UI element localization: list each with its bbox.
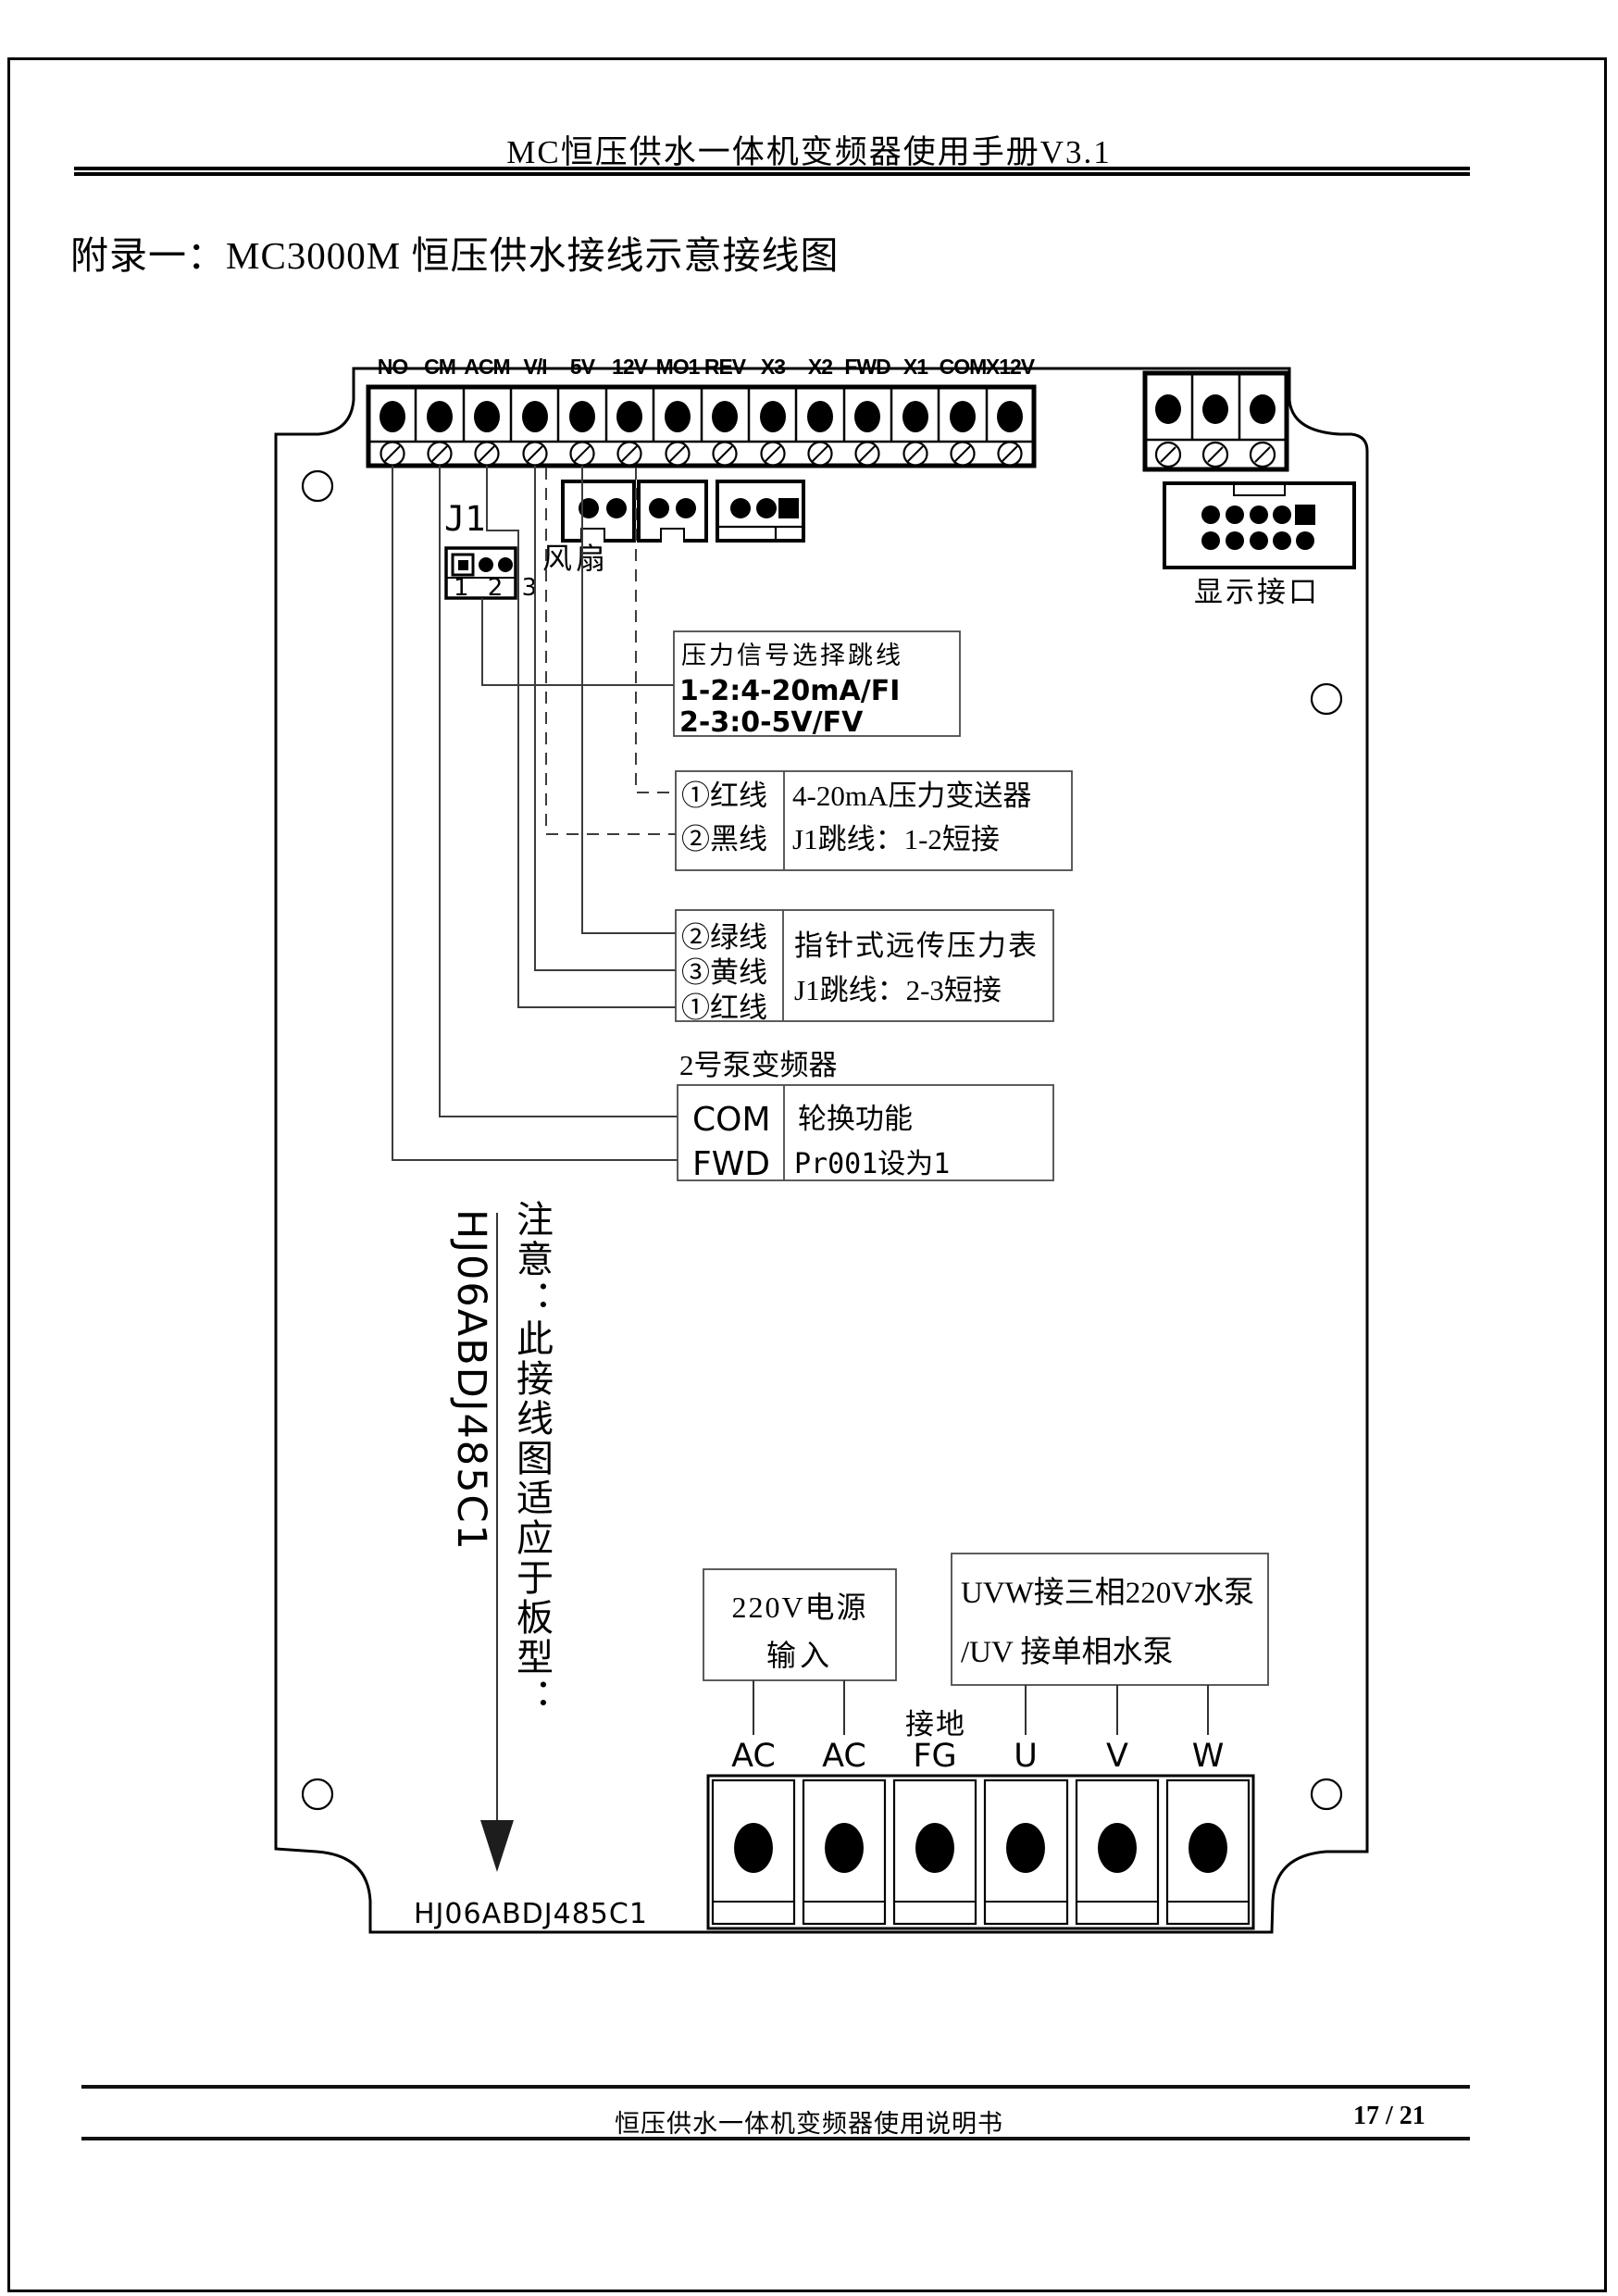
power-box-line2: 输入 bbox=[766, 1639, 833, 1672]
pump-box-line2: /UV 接单相水泵 bbox=[961, 1635, 1174, 1669]
aux-connector bbox=[717, 481, 803, 541]
terminal-label: REV bbox=[704, 355, 747, 379]
j1-pin-numbers: 1 2 3 bbox=[454, 574, 542, 602]
power-terminal-label: W bbox=[1192, 1738, 1225, 1775]
manual-page: MC恒压供水一体机变频器使用手册V3.1 附录一：MC3000M 恒压供水接线示… bbox=[0, 0, 1618, 2296]
terminal-label: X2 bbox=[808, 355, 832, 379]
terminal-label: NO bbox=[378, 355, 408, 379]
power-terminal-label: U bbox=[1014, 1738, 1038, 1775]
transducer-desc2: J1跳线：1-2短接 bbox=[792, 823, 1000, 855]
power-terminal-label: AC bbox=[822, 1738, 866, 1775]
gauge-wire3: ①红线 bbox=[681, 992, 767, 1024]
board-model-vertical: HJ06ABDJ485C1 bbox=[448, 1209, 494, 1524]
pressure-jumper-line2: 1-2:4-20mA/FI bbox=[679, 675, 900, 707]
power-terminal-label: FG bbox=[913, 1738, 956, 1775]
fan-connector-1 bbox=[563, 481, 634, 543]
terminal-label: 12V bbox=[612, 355, 649, 379]
page-number: 17 / 21 bbox=[1353, 2102, 1425, 2131]
ground-label: 接地 bbox=[905, 1708, 966, 1741]
gauge-desc2: J1跳线：2-3短接 bbox=[794, 974, 1002, 1006]
transducer-wire1: ①红线 bbox=[681, 780, 767, 812]
terminal-label: V/I bbox=[523, 355, 546, 379]
terminal-label: X3 bbox=[761, 355, 785, 379]
pump2-com: COM bbox=[692, 1101, 771, 1139]
power-terminal-label: AC bbox=[731, 1738, 776, 1775]
terminal-label: COM bbox=[940, 355, 987, 379]
wiring-diagram: NO CM ACM V/I 5V 12V MO1 REV X3 X2 FWD X… bbox=[0, 0, 1618, 2296]
power-input-box: 220V电源 输入 bbox=[703, 1569, 896, 1680]
board-model-bottom: HJ06ABDJ485C1 bbox=[414, 1898, 648, 1930]
gauge-box: ②绿线 ③黄线 ①红线 指针式远传压力表 J1跳线：2-3短接 bbox=[676, 910, 1053, 1024]
terminal-label: ACM bbox=[464, 355, 509, 379]
terminal-label: X12V bbox=[986, 355, 1036, 379]
terminal-label: FWD bbox=[844, 355, 890, 379]
gauge-wire1: ②绿线 bbox=[681, 921, 767, 954]
transducer-wire2: ②黑线 bbox=[681, 823, 767, 855]
pump2-fwd: FWD bbox=[692, 1145, 770, 1183]
relay-terminal-block bbox=[1145, 373, 1287, 469]
pump2-desc2: Pr001设为1 bbox=[794, 1148, 950, 1180]
terminal-label: X1 bbox=[903, 355, 928, 379]
terminal-label: MO1 bbox=[656, 355, 701, 379]
footer-rule-top bbox=[81, 2085, 1470, 2089]
pump-output-box: UVW接三相220V水泵 /UV 接单相水泵 bbox=[952, 1554, 1268, 1685]
transducer-box: ①红线 ②黑线 4-20mA压力变送器 J1跳线：1-2短接 bbox=[676, 771, 1072, 870]
footer-rule-bottom bbox=[81, 2137, 1470, 2140]
display-port-label: 显示接口 bbox=[1194, 576, 1320, 608]
pump2-title: 2号泵变频器 bbox=[679, 1049, 838, 1081]
fan-connector-2 bbox=[639, 481, 706, 543]
note-vertical: 注意：此接线图适应于板型： bbox=[504, 1200, 558, 1718]
j1-label: J1 bbox=[444, 499, 486, 539]
power-terminal-label: V bbox=[1106, 1738, 1128, 1775]
terminal-label: CM bbox=[424, 355, 455, 379]
transducer-desc1: 4-20mA压力变送器 bbox=[792, 780, 1031, 812]
fan-label: 风扇 bbox=[542, 542, 609, 575]
gauge-wire2: ③黄线 bbox=[681, 956, 767, 989]
terminal-label: 5V bbox=[570, 355, 596, 379]
gauge-desc1: 指针式远传压力表 bbox=[794, 930, 1039, 962]
power-box-line1: 220V电源 bbox=[731, 1591, 867, 1624]
pressure-jumper-line1: 压力信号选择跳线 bbox=[681, 642, 903, 669]
pump2-desc1: 轮换功能 bbox=[798, 1103, 913, 1135]
power-terminal-block bbox=[708, 1776, 1253, 1928]
pressure-jumper-box: 压力信号选择跳线 1-2:4-20mA/FI 2-3:0-5V/FV bbox=[674, 631, 960, 739]
pump-box-line1: UVW接三相220V水泵 bbox=[961, 1576, 1254, 1610]
pressure-jumper-line3: 2-3:0-5V/FV bbox=[679, 706, 864, 739]
